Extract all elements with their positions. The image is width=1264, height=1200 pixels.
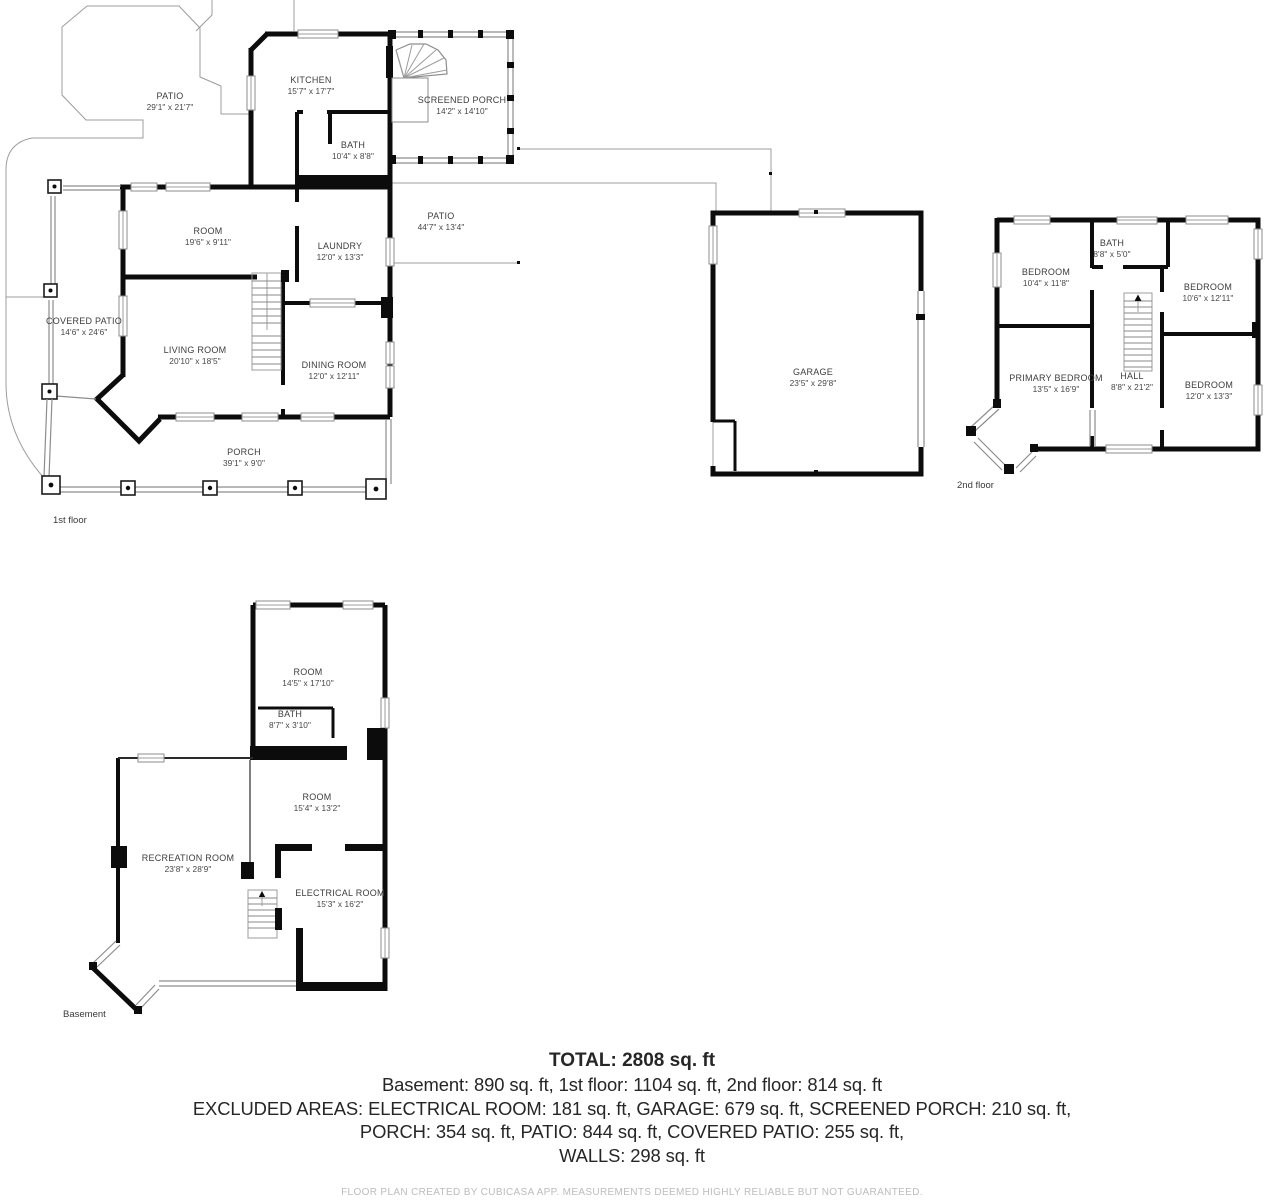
area-summary: TOTAL: 2808 sq. ft Basement: 890 sq. ft,… [0,1049,1264,1167]
second-floor-stairs [1124,293,1152,371]
garage-walls [708,209,926,474]
excluded-areas-text-1: EXCLUDED AREAS: ELECTRICAL ROOM: 181 sq.… [0,1097,1264,1121]
covered-patio-railing [42,180,121,399]
porch-railing [42,399,391,499]
floor-label-basement: Basement [63,1009,106,1020]
first-floor-walls [97,30,394,441]
screened-porch-stairs-icon [386,44,447,122]
floor-label-1st: 1st floor [53,515,87,526]
walls-area-text: WALLS: 298 sq. ft [0,1144,1264,1168]
excluded-areas-text-2: PORCH: 354 sq. ft, PATIO: 844 sq. ft, CO… [0,1120,1264,1144]
second-floor-walls [966,216,1262,474]
basement-stairs [248,890,282,938]
disclaimer-text: FLOOR PLAN CREATED BY CUBICASA APP. MEAS… [0,1187,1264,1198]
floor-label-2nd: 2nd floor [957,480,994,491]
floor-areas-text: Basement: 890 sq. ft, 1st floor: 1104 sq… [0,1073,1264,1097]
total-area-text: TOTAL: 2808 sq. ft [0,1049,1264,1073]
basement-walls [89,601,389,1014]
floor-plan-canvas: PATIO 29'1" x 21'7" KITCHEN 15'7" x 17'7… [0,0,1264,1200]
floor-plan-drawing [0,0,1264,1200]
